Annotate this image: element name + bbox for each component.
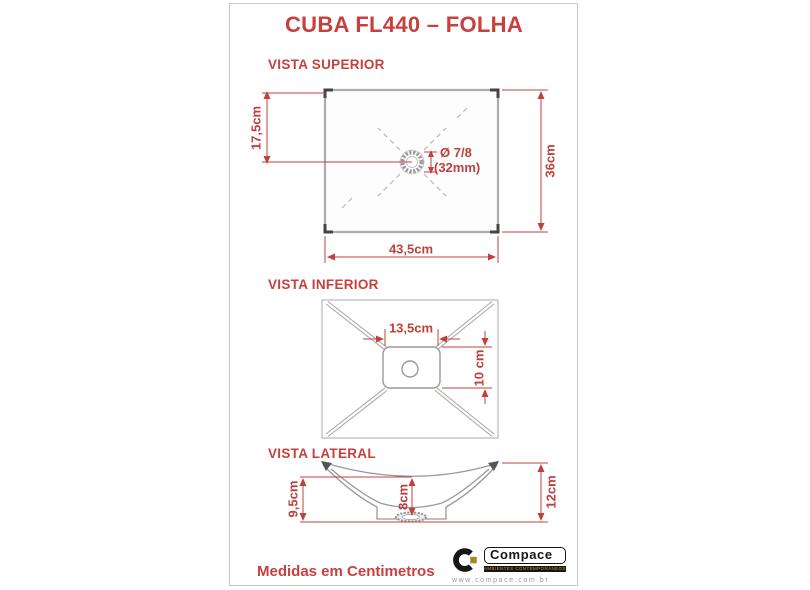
units-note: Medidas em Centimetros (257, 563, 435, 580)
brand-tagline: ambientes contemporâneos (484, 566, 566, 573)
dim-13-5cm: 13,5cm (389, 321, 433, 336)
inferior-view-label: VISTA INFERIOR (268, 277, 379, 292)
lateral-dimension-lines (300, 463, 548, 522)
dim-43-5cm: 43,5cm (389, 242, 433, 257)
dim-17-5cm: 17,5cm (249, 106, 264, 150)
dim-12cm: 12cm (544, 475, 559, 508)
lateral-view-drawing (300, 461, 549, 522)
lateral-view-label: VISTA LATERAL (268, 446, 376, 461)
drain-stub (396, 513, 426, 522)
compace-logo: Compace ambientes contemporâneos www.com… (452, 547, 576, 584)
dim-10cm: 10 cm (472, 350, 487, 387)
drain-hole-bottom (402, 361, 418, 377)
dim-36cm: 36cm (543, 144, 558, 177)
brand-name: Compace (484, 547, 566, 564)
left-rim-tip (321, 461, 332, 471)
brand-website: www.compace.com.br (452, 577, 576, 584)
superior-view-label: VISTA SUPERIOR (268, 57, 385, 72)
dim-9-5cm: 9,5cm (286, 481, 301, 518)
superior-view-drawing (262, 90, 548, 263)
dim-8cm: 8cm (396, 484, 411, 510)
drain-diameter-label-line2: (32mm) (434, 160, 480, 175)
drain-diameter-label-line1: Ø 7/8 (440, 145, 472, 160)
page-title: CUBA FL440 – FOLHA (285, 12, 523, 38)
compace-logo-icon (452, 547, 480, 575)
spec-sheet-page: CUBA FL440 – FOLHA VISTA SUPERIOR 17,5cm… (0, 0, 810, 590)
